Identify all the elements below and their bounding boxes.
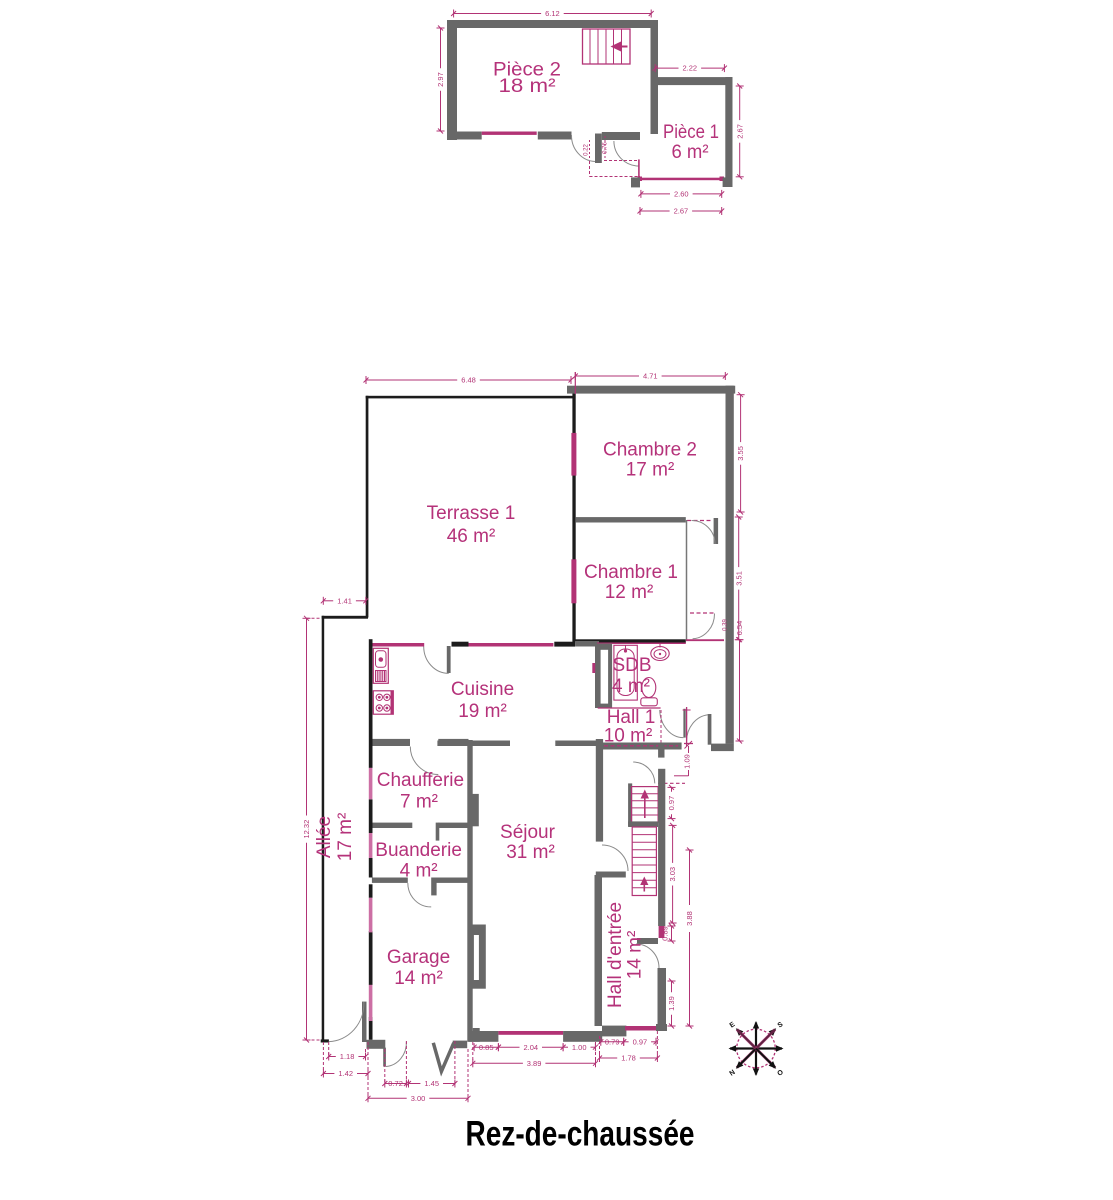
svg-text:3.03: 3.03 <box>668 867 677 882</box>
svg-text:Rez-de-chaussée: Rez-de-chaussée <box>466 1114 695 1154</box>
svg-text:2.22: 2.22 <box>682 64 697 73</box>
svg-text:12 m²: 12 m² <box>605 582 654 603</box>
svg-text:Séjour: Séjour <box>500 822 556 843</box>
svg-text:Pièce 1: Pièce 1 <box>663 122 719 143</box>
svg-text:14 m²: 14 m² <box>394 968 443 989</box>
svg-text:3.00: 3.00 <box>411 1094 426 1103</box>
svg-text:Chambre 2: Chambre 2 <box>603 440 697 461</box>
svg-text:1.09: 1.09 <box>683 754 692 769</box>
svg-text:2.60: 2.60 <box>674 190 689 199</box>
svg-text:14 m²: 14 m² <box>625 931 646 980</box>
svg-text:Chambre 1: Chambre 1 <box>584 562 678 583</box>
svg-text:17 m²: 17 m² <box>335 813 356 862</box>
svg-text:6.12: 6.12 <box>545 9 560 18</box>
svg-text:Allée: Allée <box>314 816 335 858</box>
svg-text:4 m²: 4 m² <box>400 861 438 882</box>
svg-text:Cuisine: Cuisine <box>451 679 514 700</box>
svg-text:18 m²: 18 m² <box>499 76 556 97</box>
svg-text:17 m²: 17 m² <box>626 460 675 481</box>
svg-text:1.18: 1.18 <box>340 1052 355 1061</box>
svg-text:0.72: 0.72 <box>388 1079 403 1088</box>
svg-text:0.39: 0.39 <box>723 619 729 631</box>
svg-text:2.04: 2.04 <box>523 1043 538 1052</box>
svg-text:Terrasse 1: Terrasse 1 <box>427 503 516 524</box>
svg-text:1.00: 1.00 <box>572 1043 587 1052</box>
svg-text:2.67: 2.67 <box>674 207 689 216</box>
svg-text:3.89: 3.89 <box>527 1059 542 1068</box>
svg-text:19 m²: 19 m² <box>458 701 507 722</box>
svg-text:3.51: 3.51 <box>734 571 743 586</box>
svg-text:Hall d'entrée: Hall d'entrée <box>605 902 626 1008</box>
svg-text:0.85: 0.85 <box>479 1043 494 1052</box>
svg-text:4.71: 4.71 <box>643 372 658 381</box>
svg-text:3.55: 3.55 <box>736 446 745 461</box>
svg-text:0.22: 0.22 <box>584 144 590 156</box>
svg-text:1.45: 1.45 <box>424 1079 439 1088</box>
svg-text:1.41: 1.41 <box>337 596 352 605</box>
svg-text:3.88: 3.88 <box>685 911 694 926</box>
svg-text:7 m²: 7 m² <box>400 791 438 812</box>
svg-text:Buanderie: Buanderie <box>375 840 462 861</box>
svg-text:46 m²: 46 m² <box>447 526 496 547</box>
svg-text:6.48: 6.48 <box>461 376 476 385</box>
svg-text:6.54: 6.54 <box>735 621 744 636</box>
svg-text:31 m²: 31 m² <box>506 842 555 863</box>
svg-text:1.42: 1.42 <box>338 1069 353 1078</box>
svg-text:12.32: 12.32 <box>302 820 311 839</box>
svg-text:2.97: 2.97 <box>436 72 445 87</box>
svg-text:0.97: 0.97 <box>633 1037 648 1046</box>
svg-text:Chaufferie: Chaufferie <box>377 770 464 791</box>
svg-text:4 m²: 4 m² <box>612 676 650 697</box>
svg-text:SDB: SDB <box>612 655 651 676</box>
svg-text:2.67: 2.67 <box>735 124 744 139</box>
svg-text:1.78: 1.78 <box>621 1054 636 1063</box>
svg-text:1.39: 1.39 <box>667 996 676 1011</box>
svg-text:6 m²: 6 m² <box>672 142 709 163</box>
svg-text:0.79: 0.79 <box>605 1037 620 1046</box>
svg-text:0.89: 0.89 <box>661 926 670 941</box>
svg-text:Garage: Garage <box>387 947 450 968</box>
svg-text:0.97: 0.97 <box>667 796 676 811</box>
svg-text:0.76: 0.76 <box>603 142 609 154</box>
